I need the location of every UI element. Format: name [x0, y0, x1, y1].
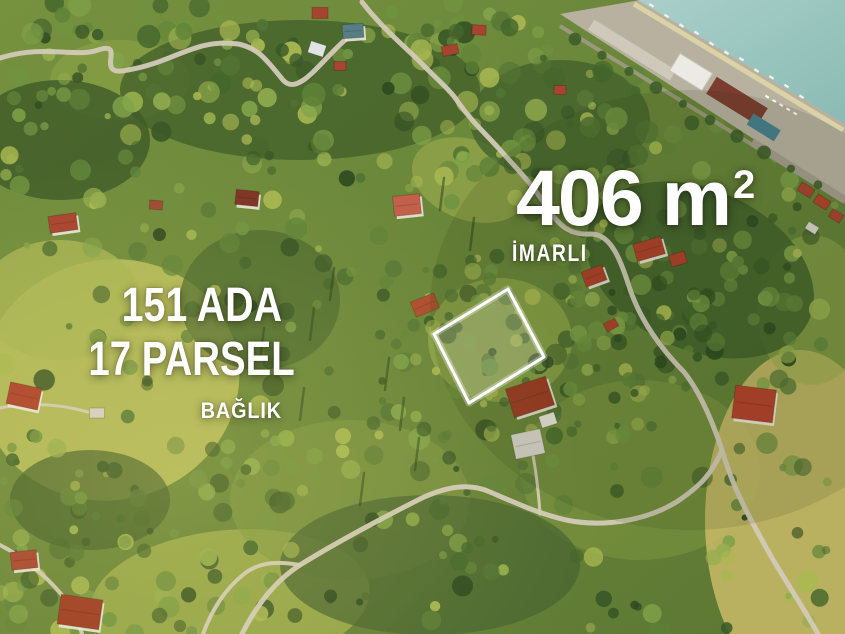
parcel-id-block: 151 ADA 17 PARSEL BAĞLIK [40, 282, 282, 422]
parcel-number-label: 17 PARSEL [88, 336, 282, 384]
zoning-label: İMARLI [512, 242, 588, 266]
area-label: 406 m2 [516, 158, 755, 237]
land-type-label: BAĞLIK [64, 400, 282, 422]
area-value: 406 m [516, 153, 730, 242]
area-superscript: 2 [733, 163, 755, 207]
aerial-listing-photo: 406 m2 İMARLI 151 ADA 17 PARSEL BAĞLIK [0, 0, 845, 634]
block-number-label: 151 ADA [84, 282, 282, 330]
